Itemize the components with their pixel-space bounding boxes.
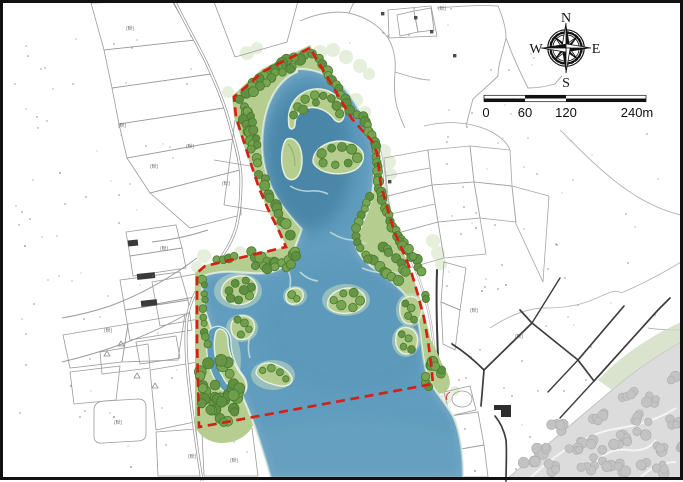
svg-text:(畎): (畎) bbox=[126, 25, 135, 32]
svg-text:(畎): (畎) bbox=[470, 307, 479, 314]
svg-text:(畎): (畎) bbox=[188, 453, 197, 460]
svg-text:S: S bbox=[562, 76, 570, 91]
svg-text:240m: 240m bbox=[621, 105, 654, 120]
svg-text:(畎): (畎) bbox=[438, 5, 447, 12]
svg-text:E: E bbox=[592, 42, 601, 57]
svg-text:W: W bbox=[529, 42, 543, 57]
svg-text:(畎): (畎) bbox=[186, 143, 195, 150]
svg-text:(畎): (畎) bbox=[118, 122, 127, 129]
svg-text:N: N bbox=[561, 11, 571, 26]
svg-text:(畎): (畎) bbox=[114, 419, 123, 426]
svg-text:60: 60 bbox=[518, 105, 532, 120]
svg-text:(畎): (畎) bbox=[104, 327, 113, 334]
svg-text:(畎): (畎) bbox=[160, 245, 169, 252]
svg-text:0: 0 bbox=[482, 105, 489, 120]
svg-text:(畎): (畎) bbox=[230, 457, 239, 464]
svg-text:(畎): (畎) bbox=[150, 163, 159, 170]
svg-text:120: 120 bbox=[555, 105, 577, 120]
